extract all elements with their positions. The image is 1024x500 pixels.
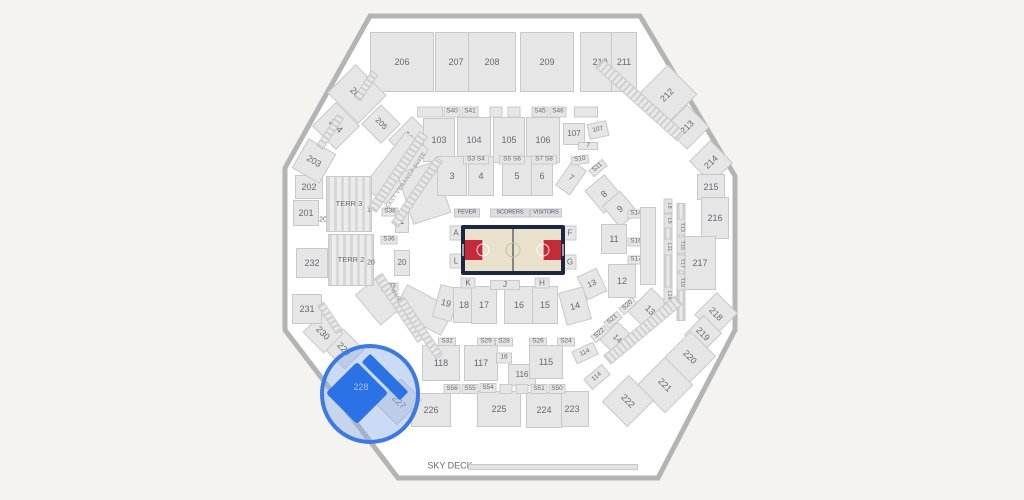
left-key (465, 240, 483, 260)
section-t17[interactable]: T17 (677, 255, 686, 272)
decor-sec (516, 384, 529, 394)
section-209[interactable]: 209 (520, 32, 574, 92)
section-l11[interactable]: L11 (664, 239, 673, 256)
court (459, 224, 567, 277)
bench-visitors: VISITORS (530, 209, 562, 218)
section-225[interactable]: 225 (477, 391, 521, 427)
section-s56[interactable]: S56 (444, 384, 461, 394)
section-15[interactable]: 15 (532, 286, 558, 324)
section-114[interactable]: 114 (583, 364, 610, 390)
section-s54[interactable]: S54 (480, 383, 497, 393)
section-107[interactable]: 107 (587, 120, 610, 140)
section-t13[interactable]: T13 (677, 219, 686, 236)
label-sky-deck: SKY DECK (427, 462, 472, 471)
bench-fever: FEVER (454, 209, 480, 218)
section-s55[interactable]: S55 (462, 384, 479, 394)
section-s40[interactable]: S40 (444, 107, 461, 118)
decor-sec (500, 384, 513, 394)
section-j[interactable]: J (490, 280, 520, 290)
bench-scorers: SCORERS (490, 209, 530, 218)
section-terr-3[interactable]: TERR 3 (326, 176, 372, 232)
section-s7-s8[interactable]: S7 S8 (531, 156, 557, 165)
section-114[interactable]: 114 (571, 342, 599, 365)
section-217[interactable]: 217 (684, 236, 716, 290)
decor-sec (508, 107, 521, 118)
decor-sec (574, 107, 598, 118)
section-s50[interactable]: S50 (549, 384, 566, 394)
label-20: 20 (367, 260, 375, 267)
section-t15[interactable]: T15 (677, 237, 686, 254)
section-l8[interactable]: L8 (664, 199, 673, 214)
section-206[interactable]: 206 (370, 32, 434, 92)
section-117[interactable]: 117 (464, 345, 498, 381)
decor-sec (490, 107, 503, 118)
section-s3-s4[interactable]: S3 S4 (463, 156, 489, 165)
section-s45[interactable]: S45 (532, 107, 549, 118)
section-115[interactable]: 115 (529, 345, 563, 379)
section-s41[interactable]: S41 (462, 107, 479, 118)
section-216[interactable]: 216 (701, 197, 729, 239)
section-t19[interactable]: T19 (677, 274, 686, 291)
section-231[interactable]: 231 (292, 294, 322, 324)
section-12[interactable]: 12 (608, 264, 636, 298)
section-s51[interactable]: S51 (531, 384, 548, 394)
section-16[interactable]: 16 (496, 353, 512, 364)
section-l9[interactable]: L9 (664, 214, 673, 229)
section-h[interactable]: H (535, 278, 550, 289)
section-s46[interactable]: S46 (550, 107, 567, 118)
section-20[interactable]: 20 (394, 250, 410, 276)
section-201[interactable]: 201 (293, 200, 319, 226)
decor-sec (640, 207, 656, 285)
section-224[interactable]: 224 (526, 392, 562, 428)
selected-section-label: 228 (346, 382, 376, 392)
section-s10[interactable]: S10 (570, 154, 589, 165)
section-11[interactable]: 11 (601, 224, 627, 254)
left-sideline-mark (462, 244, 464, 256)
section-s5-s6[interactable]: S5 S6 (499, 156, 525, 165)
section-s36[interactable]: S36 (381, 236, 398, 245)
seat-map-canvas: 2062072082092102112052052042122132142152… (0, 0, 1024, 500)
section-208[interactable]: 208 (468, 32, 516, 92)
section-232[interactable]: 232 (296, 248, 328, 278)
section-17[interactable]: 17 (471, 286, 497, 324)
section-16[interactable]: 16 (504, 286, 534, 324)
right-sideline-mark (562, 244, 564, 256)
decor-sec (417, 107, 443, 118)
decor-bar (468, 464, 638, 470)
section-7[interactable]: 7 (578, 142, 598, 150)
section-k[interactable]: K (461, 278, 476, 289)
right-key (543, 240, 561, 260)
